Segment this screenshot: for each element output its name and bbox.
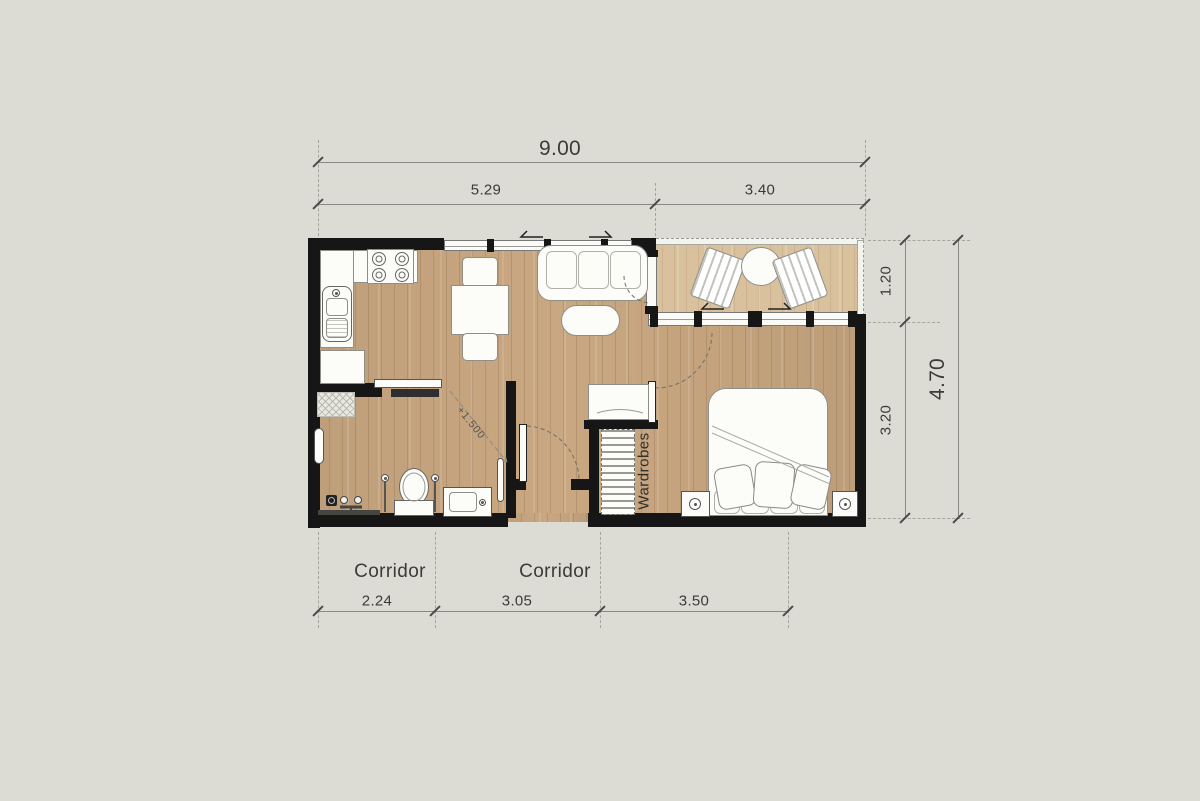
shower-pole-knob xyxy=(431,474,439,482)
wardrobes-label: Wardrobes xyxy=(636,432,653,509)
balcony-railing-top xyxy=(646,238,864,245)
extension-line xyxy=(600,532,601,628)
extension-line xyxy=(655,183,656,236)
sofa-cushion xyxy=(546,251,577,289)
entry-door-leaf xyxy=(519,424,527,482)
wall-wardrobe-left xyxy=(589,420,599,518)
sink-basin xyxy=(326,298,348,316)
sink-drainer xyxy=(326,318,348,338)
dim-top-right: 3.40 xyxy=(745,182,775,199)
window-mullion xyxy=(748,311,762,327)
shower-channel xyxy=(318,510,380,515)
window-mullion xyxy=(487,239,494,252)
stove-icon xyxy=(367,249,414,284)
shower-pole-icon xyxy=(384,479,386,512)
shower-pole-knob xyxy=(381,474,389,482)
shower-pole-icon xyxy=(434,479,436,512)
dim-top-left: 5.29 xyxy=(471,182,501,199)
floor-plan: Wardrobes xyxy=(0,0,1200,801)
extension-line xyxy=(865,140,866,236)
dimension-line-top-total xyxy=(318,162,865,163)
dim-bottom-1: 2.24 xyxy=(362,593,392,610)
sofa-cushion xyxy=(610,251,641,289)
corridor-label: Corridor xyxy=(519,561,591,583)
pillow-icon xyxy=(752,461,795,510)
window-arrow-icon xyxy=(589,231,611,237)
dim-top-total: 9.00 xyxy=(539,137,581,161)
towel-rail-icon xyxy=(314,428,324,464)
extension-line xyxy=(435,532,436,628)
dimension-line-right-segments xyxy=(905,240,906,518)
window-mullion xyxy=(645,306,658,314)
dimension-line-bottom xyxy=(318,611,788,612)
dimension-line-right-total xyxy=(958,240,959,518)
dining-chair-icon xyxy=(462,333,498,361)
dim-right-lower: 3.20 xyxy=(878,405,895,435)
dining-chair-icon xyxy=(462,257,498,287)
wall-wardrobe-top xyxy=(584,420,658,429)
extension-line xyxy=(318,140,319,236)
towel-rail-icon xyxy=(497,458,504,502)
window-mullion xyxy=(848,311,857,327)
sofa-cushion xyxy=(578,251,609,289)
bedside-lamp-icon xyxy=(839,498,851,510)
dining-table-icon xyxy=(451,285,509,335)
vanity-faucet-icon xyxy=(479,499,486,506)
bedside-lamp-icon xyxy=(689,498,701,510)
window-mullion xyxy=(806,311,814,327)
balcony-railing-right xyxy=(857,240,864,316)
bathroom-sliding-door-panel xyxy=(374,379,442,388)
wall-bathroom-hall xyxy=(506,381,516,518)
pillow-icon xyxy=(713,463,758,511)
vanity-basin xyxy=(449,492,477,512)
bathroom-sliding-door-track xyxy=(391,389,439,397)
entry-door-jamb-right xyxy=(571,479,589,490)
shower-drain-icon xyxy=(326,495,337,506)
sink-faucet-icon xyxy=(332,289,340,297)
dim-bottom-2: 3.05 xyxy=(502,593,532,610)
fridge-icon xyxy=(320,350,365,384)
wardrobe-icon xyxy=(601,429,635,515)
extension-line xyxy=(318,532,319,628)
dim-right-total: 4.70 xyxy=(926,358,950,400)
desk-icon xyxy=(588,384,649,420)
bath-mat-icon xyxy=(317,392,355,417)
toilet-tank xyxy=(394,500,434,516)
window-mullion xyxy=(694,311,702,327)
dim-bottom-3: 3.50 xyxy=(679,593,709,610)
dim-right-upper: 1.20 xyxy=(878,266,895,296)
coffee-table-icon xyxy=(561,305,620,336)
extension-line xyxy=(788,532,789,628)
bedroom-door-leaf xyxy=(648,381,656,423)
entry-recess-floor xyxy=(508,513,588,522)
window-arrow-icon xyxy=(521,231,543,237)
dimension-line-top-segments xyxy=(318,204,865,205)
corridor-label: Corridor xyxy=(354,561,426,583)
